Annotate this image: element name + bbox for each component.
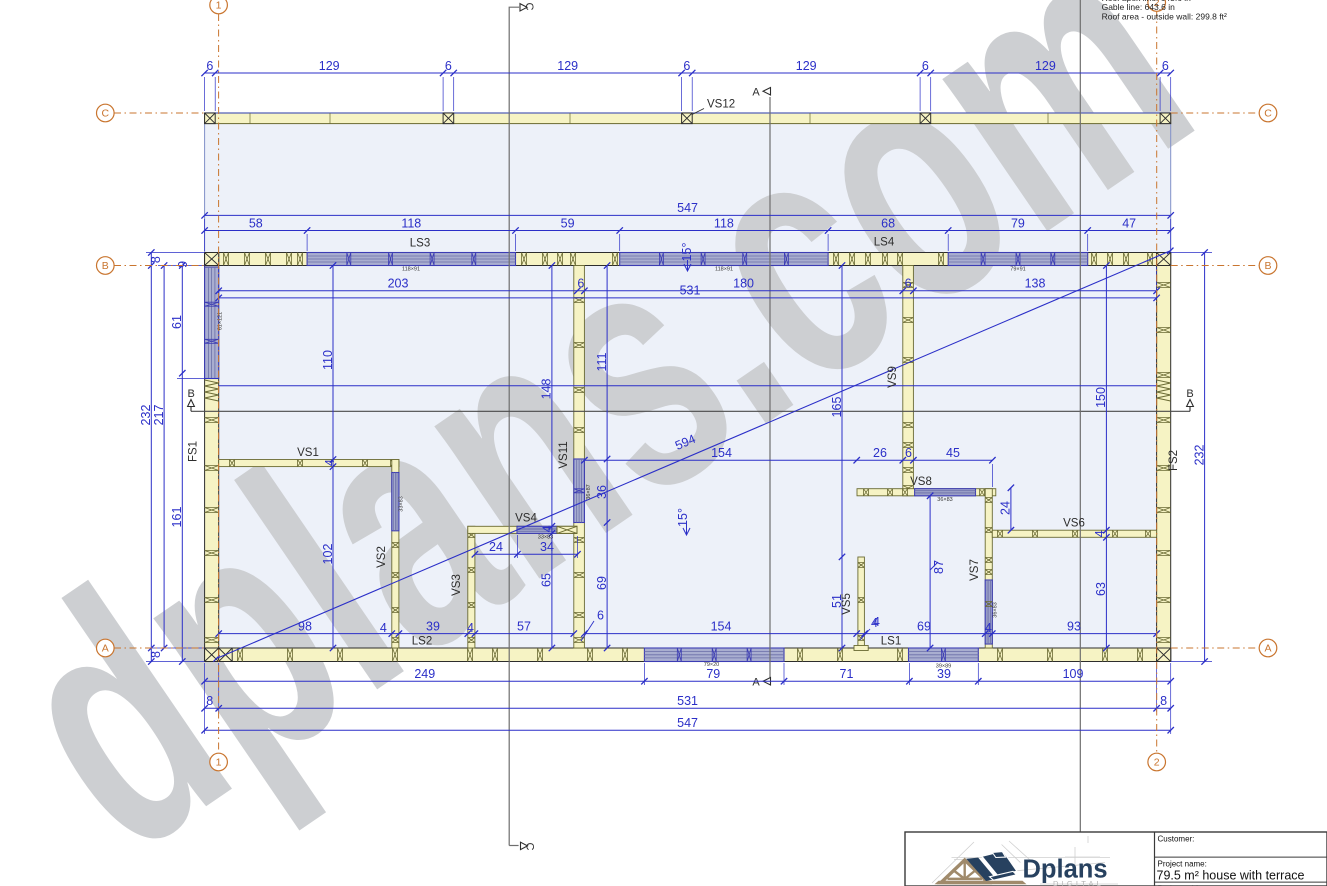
svg-text:FS2: FS2 (1168, 450, 1180, 471)
svg-text:Customer:: Customer: (1158, 835, 1195, 844)
svg-text:C: C (1264, 108, 1272, 120)
svg-text:232: 232 (1192, 445, 1206, 466)
svg-text:A: A (752, 677, 760, 689)
svg-text:79: 79 (1011, 216, 1025, 230)
svg-text:VS11: VS11 (558, 441, 570, 468)
svg-text:58: 58 (249, 216, 263, 230)
svg-text:93: 93 (1067, 619, 1081, 633)
svg-text:129: 129 (557, 59, 578, 73)
svg-text:VS3: VS3 (451, 574, 463, 596)
svg-text:A: A (102, 643, 109, 655)
svg-text:4: 4 (873, 615, 880, 629)
svg-text:Roof area - outside wall: 299.: Roof area - outside wall: 299.8 ft² (1102, 12, 1227, 22)
svg-text:8: 8 (149, 256, 163, 263)
svg-text:33×83: 33×83 (399, 496, 405, 511)
svg-text:LS2: LS2 (412, 636, 432, 648)
svg-text:138: 138 (1025, 277, 1046, 291)
svg-text:102: 102 (321, 544, 335, 565)
svg-text:547: 547 (677, 201, 698, 215)
svg-text:547: 547 (677, 716, 698, 730)
svg-text:LS1: LS1 (881, 636, 901, 648)
svg-text:79: 79 (706, 667, 720, 681)
svg-text:68: 68 (881, 216, 895, 230)
svg-text:Gable line: 643.6 in: Gable line: 643.6 in (1102, 2, 1176, 12)
svg-text:FS1: FS1 (188, 441, 200, 462)
svg-text:VS12: VS12 (707, 99, 735, 111)
svg-text:VS1: VS1 (297, 447, 319, 459)
svg-text:59: 59 (561, 216, 575, 230)
svg-text:217: 217 (152, 405, 166, 426)
svg-text:VS2: VS2 (376, 546, 388, 568)
svg-text:165: 165 (830, 397, 844, 418)
svg-text:69: 69 (917, 619, 931, 633)
svg-text:71: 71 (840, 667, 854, 681)
svg-text:VS7: VS7 (969, 559, 981, 581)
svg-text:150: 150 (1094, 387, 1108, 408)
svg-text:118: 118 (401, 216, 421, 230)
svg-text:33×83: 33×83 (538, 535, 553, 541)
svg-text:98: 98 (298, 619, 312, 633)
svg-text:6: 6 (577, 277, 584, 291)
svg-text:129: 129 (796, 59, 817, 73)
svg-text:57: 57 (517, 619, 531, 633)
svg-text:249: 249 (414, 667, 435, 681)
svg-text:79×91: 79×91 (1010, 267, 1025, 273)
svg-text:36: 36 (595, 485, 609, 499)
svg-text:180: 180 (733, 277, 754, 291)
svg-text:6: 6 (922, 59, 929, 73)
svg-text:24: 24 (999, 501, 1013, 515)
svg-text:8: 8 (149, 651, 163, 658)
svg-text:110: 110 (321, 350, 335, 370)
svg-text:109: 109 (1063, 667, 1084, 681)
svg-text:129: 129 (319, 59, 340, 73)
svg-text:B: B (102, 260, 109, 272)
svg-text:69: 69 (595, 576, 609, 590)
svg-text:VS9: VS9 (887, 366, 899, 388)
svg-text:DIGITAL: DIGITAL (1053, 879, 1104, 886)
svg-text:C: C (102, 108, 110, 120)
svg-text:4: 4 (380, 621, 387, 635)
svg-text:36×87: 36×87 (586, 484, 592, 499)
svg-text:Project name:: Project name: (1158, 860, 1207, 869)
svg-text:34: 34 (540, 540, 554, 554)
svg-text:36×83: 36×83 (993, 602, 999, 617)
svg-text:C: C (524, 843, 536, 851)
svg-text:6: 6 (905, 446, 912, 460)
svg-text:VS5: VS5 (841, 593, 853, 615)
svg-text:B: B (1264, 260, 1271, 272)
svg-text:4: 4 (541, 525, 555, 532)
svg-text:6: 6 (1162, 59, 1169, 73)
svg-text:VS6: VS6 (1063, 518, 1085, 530)
svg-text:A: A (752, 87, 760, 99)
svg-text:203: 203 (388, 277, 409, 291)
svg-text:6: 6 (683, 59, 690, 73)
svg-text:6: 6 (445, 59, 452, 73)
svg-text:VS4: VS4 (515, 513, 537, 525)
svg-text:LS3: LS3 (410, 238, 430, 250)
svg-text:C: C (523, 3, 535, 11)
svg-text:6: 6 (905, 277, 912, 291)
svg-text:4: 4 (985, 621, 992, 635)
svg-text:6: 6 (206, 59, 213, 73)
svg-text:LS4: LS4 (874, 237, 895, 249)
svg-text:6: 6 (597, 609, 604, 623)
svg-text:1: 1 (216, 0, 222, 12)
svg-text:4: 4 (467, 621, 474, 635)
svg-text:36×83: 36×83 (937, 497, 952, 503)
svg-text:531: 531 (680, 284, 701, 298)
svg-text:531: 531 (677, 694, 698, 708)
svg-text:79×20: 79×20 (704, 662, 719, 668)
svg-text:24: 24 (489, 540, 503, 554)
svg-text:VS8: VS8 (910, 476, 932, 488)
svg-text:4: 4 (323, 459, 337, 466)
svg-text:61: 61 (170, 315, 184, 329)
svg-text:8: 8 (206, 694, 213, 708)
svg-text:B: B (188, 388, 195, 400)
svg-text:79.5 m² house with terrace: 79.5 m² house with terrace (1157, 869, 1305, 883)
svg-text:118×91: 118×91 (402, 267, 420, 273)
svg-text:26: 26 (873, 446, 887, 460)
svg-text:15°: 15° (676, 508, 690, 527)
svg-text:45: 45 (946, 446, 960, 460)
svg-text:B: B (1186, 388, 1193, 400)
svg-text:65: 65 (540, 573, 554, 587)
svg-text:148: 148 (540, 379, 554, 400)
svg-text:154: 154 (711, 446, 732, 460)
svg-text:118×91: 118×91 (715, 267, 733, 273)
svg-text:63: 63 (1094, 582, 1108, 596)
svg-text:2: 2 (1154, 757, 1160, 769)
svg-text:A: A (1264, 643, 1271, 655)
svg-text:15°: 15° (680, 243, 694, 262)
svg-text:154: 154 (711, 619, 732, 633)
svg-text:8: 8 (1160, 694, 1167, 708)
svg-text:161: 161 (170, 507, 184, 528)
svg-text:39: 39 (426, 619, 440, 633)
svg-text:39×89: 39×89 (936, 664, 951, 670)
svg-text:47: 47 (1122, 216, 1136, 230)
svg-text:111: 111 (595, 352, 609, 371)
svg-text:118: 118 (714, 216, 734, 230)
svg-text:1: 1 (216, 757, 222, 769)
svg-text:87: 87 (932, 560, 946, 574)
svg-text:129: 129 (1035, 59, 1056, 73)
